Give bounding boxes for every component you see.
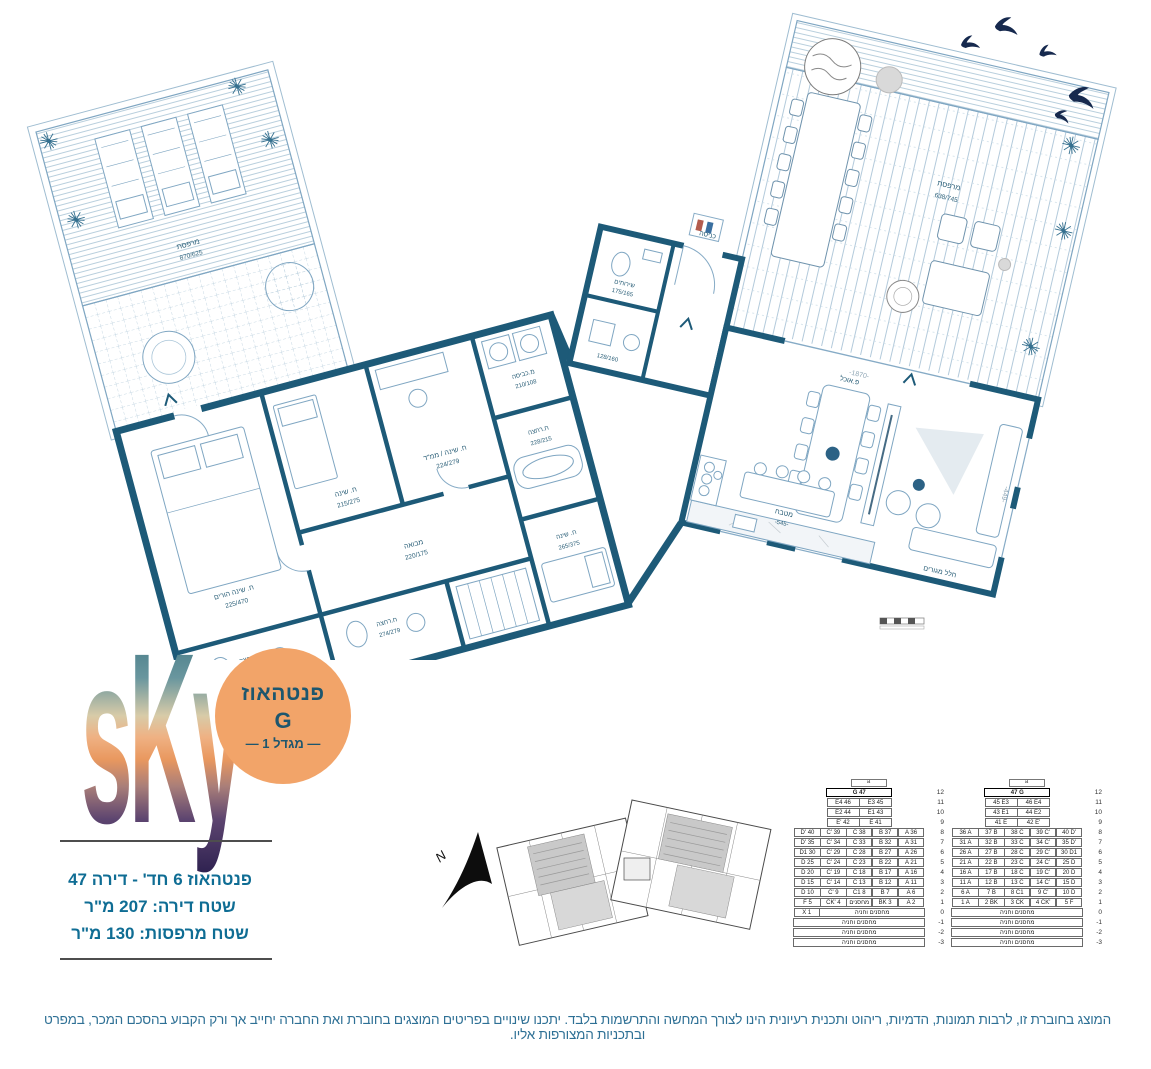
stack-cell: 42 E' (1017, 818, 1050, 827)
floor-number: 3 (925, 878, 944, 888)
summary-line2: שטח דירה: 207 מ"ר (35, 893, 285, 920)
north-arrow: N (432, 832, 492, 908)
stack-cell: מחסנים וחניה (793, 918, 925, 927)
stack-cell: A 2 (898, 898, 924, 907)
stack-row: מחסנים וחניה-3 (793, 938, 944, 948)
stack-cell: A 31 (898, 838, 924, 847)
stack-cell: B 22 (872, 858, 898, 867)
floor-plan: מרפסת 870/625 (0, 0, 1151, 660)
stack-cell: 1 A (952, 898, 978, 907)
stack-row: 26 A27 B28 C29 C'30 D16 (951, 848, 1102, 858)
stack-row: מחסנים וחניה-2 (793, 928, 944, 938)
stack-cell: C' 24 (820, 858, 846, 867)
floor-number: -2 (925, 928, 944, 938)
stack-table-header: a (851, 779, 887, 787)
floor-number: 1 (925, 898, 944, 908)
stack-row: E2 44E1 4310 (793, 808, 944, 818)
stack-cell: 41 E (985, 818, 1018, 827)
floor-number: -3 (925, 938, 944, 948)
stack-cell: 12 B (978, 878, 1004, 887)
floor-number: 3 (1083, 878, 1102, 888)
stack-cell: 26 A (952, 848, 978, 857)
stack-cell: 39 C' (1030, 828, 1056, 837)
stack-cell: B 12 (872, 878, 898, 887)
stack-cell: 24 C' (1030, 858, 1056, 867)
summary-line3: שטח מרפסות: 130 מ"ר (35, 920, 285, 947)
stack-cell: C 18 (846, 868, 872, 877)
stack-cell: C 13 (846, 878, 872, 887)
stack-cell: C' 14 (820, 878, 846, 887)
stack-cell: 11 A (952, 878, 978, 887)
stack-row: E' 42E 419 (793, 818, 944, 828)
stack-cell: D 25 (794, 858, 820, 867)
scale-bar (880, 618, 924, 629)
key-plan-outline (497, 800, 771, 945)
stack-cell: 44 E2 (1017, 808, 1050, 817)
stack-cell: 17 B (978, 868, 1004, 877)
stack-cell: B 37 (872, 828, 898, 837)
floor-number: 11 (1083, 798, 1102, 808)
summary-line1: פנטהאוז 6 חד' - דירה 47 (35, 866, 285, 893)
floor-number: 8 (925, 828, 944, 838)
stack-cell: D 15 (794, 878, 820, 887)
stack-cell: 7 B (978, 888, 1004, 897)
stack-row: G 4712 (793, 788, 944, 798)
stack-row: 1 A2 BK3 CK4 CK'5 F1 (951, 898, 1102, 908)
stack-cell: C 28 (846, 848, 872, 857)
stack-cell: 5 F (1056, 898, 1082, 907)
stack-cell: 18 C (1004, 868, 1030, 877)
stack-cell: X 1 (794, 908, 820, 917)
floor-number: 2 (925, 888, 944, 898)
stack-cell: 37 B (978, 828, 1004, 837)
stack-cell: E4 46 (827, 798, 860, 807)
stack-table-right: a 47 G1245 E346 E41143 E144 E21041 E42 E… (951, 779, 1102, 948)
stack-cell: 4 CK' (1030, 898, 1056, 907)
stack-cell: 47 G (984, 788, 1050, 797)
stack-cell: A 16 (898, 868, 924, 877)
stack-row: מחסנים וחניה-3 (951, 938, 1102, 948)
floor-number: 5 (1083, 858, 1102, 868)
stack-cell: F 5 (794, 898, 820, 907)
stack-cell: 38 C (1004, 828, 1030, 837)
stack-cell: 30 D1 (1056, 848, 1082, 857)
stack-cell: 29 C' (1030, 848, 1056, 857)
floor-number: 8 (1083, 828, 1102, 838)
stack-cell: 21 A (952, 858, 978, 867)
badge-line3: — מגדל 1 — (215, 736, 351, 751)
stack-row: 41 E42 E'9 (951, 818, 1102, 828)
stack-row: 45 E346 E411 (951, 798, 1102, 808)
stack-row: מחסנים וחניה-2 (951, 928, 1102, 938)
stack-cell: מחסנים וחניה (951, 908, 1083, 917)
stack-cell: 34 C' (1030, 838, 1056, 847)
stack-cell: 6 A (952, 888, 978, 897)
stack-cell: מחסנים וחניה (951, 928, 1083, 937)
stack-cell: 10 D (1056, 888, 1082, 897)
left-wing: מרפסת 870/625 (27, 9, 628, 660)
stack-cell: A 26 (898, 848, 924, 857)
stack-cell: C' 29 (820, 848, 846, 857)
floor-number: 6 (1083, 848, 1102, 858)
stack-cell: A 6 (898, 888, 924, 897)
stack-row: D 10C' 9C1 8B 7A 62 (793, 888, 944, 898)
floor-number: -2 (1083, 928, 1102, 938)
stack-cell: 31 A (952, 838, 978, 847)
stack-cell: BK 3 (872, 898, 898, 907)
stack-row: מחסנים וחניה-1 (951, 918, 1102, 928)
stack-cell: 8 C1 (1004, 888, 1030, 897)
stack-table-rows: G 4712E4 46E3 4511E2 44E1 4310E' 42E 419… (793, 788, 944, 948)
stack-row: X 1מחסנים וחניה0 (793, 908, 944, 918)
floor-number: 7 (925, 838, 944, 848)
disclaimer-text: המוצג בחוברת זו, לרבות תמונות, הדמיות, ר… (25, 1012, 1130, 1042)
stack-table-rows: 47 G1245 E346 E41143 E144 E21041 E42 E'9… (951, 788, 1102, 948)
floor-number: 10 (1083, 808, 1102, 818)
stack-cell: מחסנים וחניה (793, 928, 925, 937)
floor-number: -3 (1083, 938, 1102, 948)
floor-number: 9 (1083, 818, 1102, 828)
stack-cell: 33 C (1004, 838, 1030, 847)
floor-number: 5 (925, 858, 944, 868)
stack-cell: 32 B (978, 838, 1004, 847)
key-plan: N (428, 788, 778, 963)
stack-cell: 9 C' (1030, 888, 1056, 897)
right-wing: מרפסת 638/745 שירותים 175/165 128/160 כנ… (539, 0, 1116, 600)
stack-cell: B 32 (872, 838, 898, 847)
stack-cell: 45 E3 (985, 798, 1018, 807)
stack-cell: 23 C (1004, 858, 1030, 867)
stack-row: 31 A32 B33 C34 C'35 D'7 (951, 838, 1102, 848)
stack-table-left: a G 4712E4 46E3 4511E2 44E1 4310E' 42E 4… (793, 779, 944, 948)
stack-row: מחסנים וחניה-1 (793, 918, 944, 928)
stack-row: D' 40C' 39C 38B 37A 368 (793, 828, 944, 838)
badge-line1: פנטהאוז (215, 682, 351, 706)
stack-row: 21 A22 B23 C24 C'25 D5 (951, 858, 1102, 868)
stack-cell: 2 BK (978, 898, 1004, 907)
stack-cell: C 38 (846, 828, 872, 837)
floor-number: 10 (925, 808, 944, 818)
stack-cell: A 21 (898, 858, 924, 867)
stack-cell: A 11 (898, 878, 924, 887)
north-label: N (432, 847, 449, 865)
stack-cell: E2 44 (827, 808, 860, 817)
stack-cell: מחסנים וחניה (951, 918, 1083, 927)
stack-row: D 20C' 19C 18B 17A 164 (793, 868, 944, 878)
stack-cell: D' 40 (794, 828, 820, 837)
stack-cell: מחסנים וחניה (793, 938, 925, 947)
stack-cell: 13 C (1004, 878, 1030, 887)
stack-cell: C 23 (846, 858, 872, 867)
stack-row: D1 30C' 29C 28B 27A 266 (793, 848, 944, 858)
stack-row: F 5CK' 4מחסניםBK 3A 21 (793, 898, 944, 908)
badge-line2: G (215, 708, 351, 734)
stack-row: 47 G12 (951, 788, 1102, 798)
stack-row: 16 A17 B18 C19 C'20 D4 (951, 868, 1102, 878)
stack-row: 36 A37 B38 C39 C'40 D'8 (951, 828, 1102, 838)
stack-cell: 19 C' (1030, 868, 1056, 877)
stack-row: E4 46E3 4511 (793, 798, 944, 808)
stack-cell: E 41 (859, 818, 892, 827)
stack-cell: A 36 (898, 828, 924, 837)
stack-row: D 15C' 14C 13B 12A 113 (793, 878, 944, 888)
stack-cell: 3 CK (1004, 898, 1030, 907)
stack-cell: 40 D' (1056, 828, 1082, 837)
stack-cell: C' 19 (820, 868, 846, 877)
stack-cell: G 47 (826, 788, 892, 797)
floor-number: 2 (1083, 888, 1102, 898)
floor-number: -1 (1083, 918, 1102, 928)
stack-cell: 27 B (978, 848, 1004, 857)
stack-cell: B 27 (872, 848, 898, 857)
stack-row: 11 A12 B13 C14 C'15 D3 (951, 878, 1102, 888)
floor-number: 6 (925, 848, 944, 858)
stack-cell: 16 A (952, 868, 978, 877)
floor-number: 0 (925, 908, 944, 918)
stack-cell: C 33 (846, 838, 872, 847)
stack-cell: C1 8 (846, 888, 872, 897)
apartment-summary: פנטהאוז 6 חד' - דירה 47 שטח דירה: 207 מ"… (35, 866, 285, 947)
stack-cell: 35 D' (1056, 838, 1082, 847)
penthouse-badge: פנטהאוז G — מגדל 1 — (215, 648, 351, 784)
floor-number: 1 (1083, 898, 1102, 908)
brochure-page: מרפסת 870/625 (0, 0, 1151, 1069)
floor-number: 9 (925, 818, 944, 828)
floor-number: 12 (1083, 788, 1102, 798)
stack-cell: 46 E4 (1017, 798, 1050, 807)
stack-cell: 15 D (1056, 878, 1082, 887)
logo-underline (60, 840, 272, 842)
stack-cell: B 7 (872, 888, 898, 897)
stack-cell: מחסנים (846, 898, 872, 907)
key-plan-core (624, 858, 650, 880)
stack-row: D 25C' 24C 23B 22A 215 (793, 858, 944, 868)
stack-cell: 43 E1 (985, 808, 1018, 817)
stack-cell: 25 D (1056, 858, 1082, 867)
stack-cell: CK' 4 (820, 898, 846, 907)
stack-row: 6 A7 B8 C19 C'10 D2 (951, 888, 1102, 898)
stack-cell: D 10 (794, 888, 820, 897)
stack-cell: 36 A (952, 828, 978, 837)
floor-number: 4 (925, 868, 944, 878)
floor-number: -1 (925, 918, 944, 928)
stack-cell: 14 C' (1030, 878, 1056, 887)
stack-cell: D' 35 (794, 838, 820, 847)
stack-cell: E3 45 (859, 798, 892, 807)
stack-cell: 20 D (1056, 868, 1082, 877)
stack-row: D' 35C' 34C 33B 32A 317 (793, 838, 944, 848)
stack-table-header: a (1009, 779, 1045, 787)
stack-row: 43 E144 E210 (951, 808, 1102, 818)
stack-cell: E1 43 (859, 808, 892, 817)
floor-number: 12 (925, 788, 944, 798)
stack-cell: מחסנים וחניה (951, 938, 1083, 947)
stack-cell: E' 42 (827, 818, 860, 827)
stack-cell: מחסנים וחניה (819, 908, 925, 917)
floor-number: 11 (925, 798, 944, 808)
stack-cell: C' 9 (820, 888, 846, 897)
stack-row: מחסנים וחניה0 (951, 908, 1102, 918)
stack-cell: 28 C (1004, 848, 1030, 857)
floor-number: 4 (1083, 868, 1102, 878)
floor-number: 7 (1083, 838, 1102, 848)
stack-cell: C' 34 (820, 838, 846, 847)
stack-cell: 22 B (978, 858, 1004, 867)
floor-number: 0 (1083, 908, 1102, 918)
stack-cell: B 17 (872, 868, 898, 877)
stack-cell: D 20 (794, 868, 820, 877)
stack-cell: C' 39 (820, 828, 846, 837)
stack-cell: D1 30 (794, 848, 820, 857)
summary-underline (60, 958, 272, 960)
